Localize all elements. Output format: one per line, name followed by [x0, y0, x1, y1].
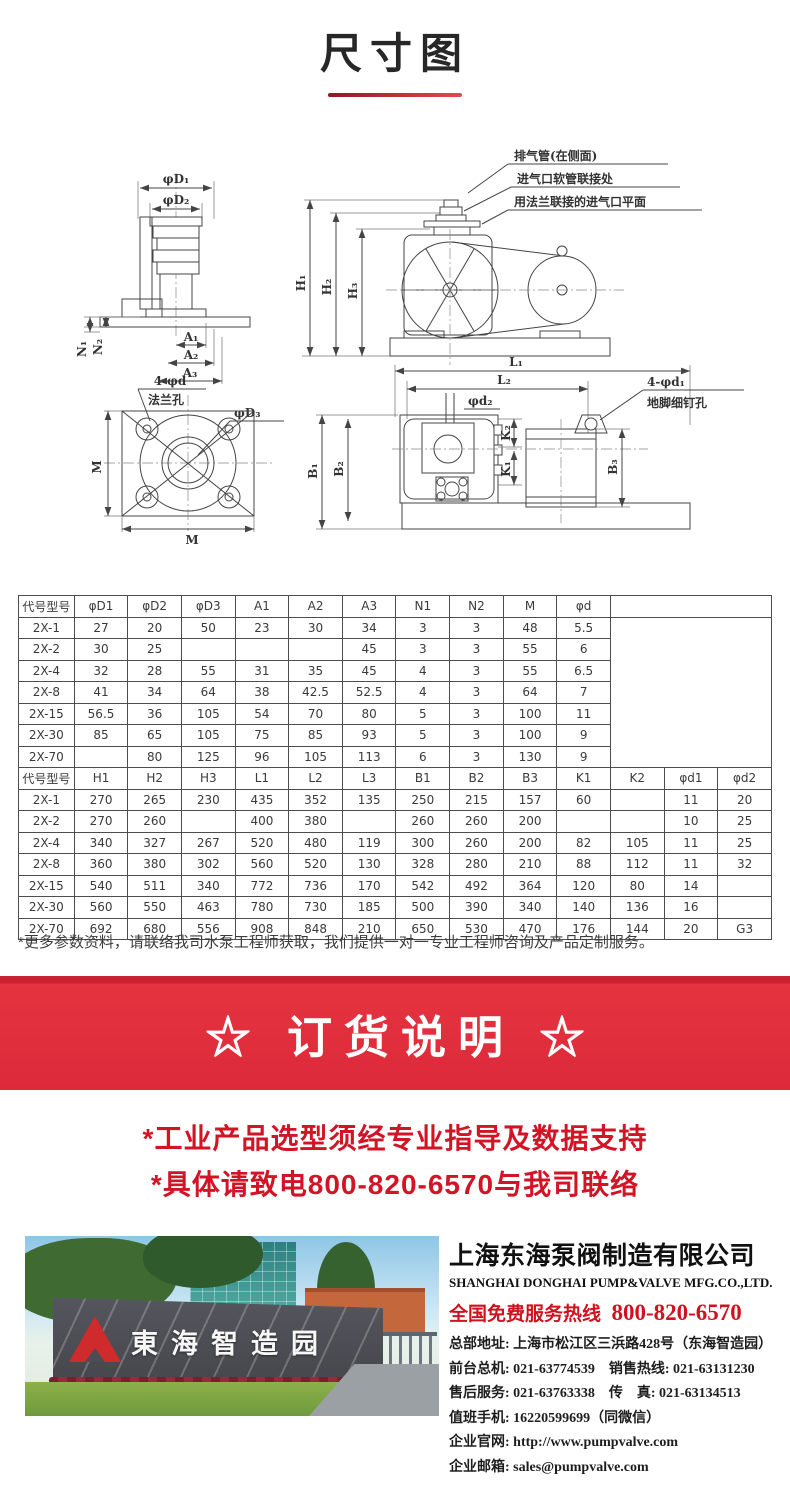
company-name-en: SHANGHAI DONGHAI PUMP&VALVE MFG.CO.,LTD.	[449, 1275, 784, 1291]
table-cell: 2X-4	[19, 660, 75, 682]
table-cell: 2X-1	[19, 789, 75, 811]
table-cell: 70	[289, 703, 343, 725]
title-underline	[328, 93, 462, 97]
table-cell: 65	[128, 725, 182, 747]
table-cell: 125	[181, 746, 235, 768]
dim-label: M	[185, 533, 198, 547]
table-cell: 2X-8	[19, 854, 75, 876]
table-cell: 35	[289, 660, 343, 682]
table-cell: 93	[342, 725, 396, 747]
table-cell: 11	[557, 703, 611, 725]
dim-label: 地脚细钉孔	[647, 395, 707, 410]
table-cell: 340	[181, 875, 235, 897]
dimension-diagrams: φD₁ φD₂ N₁ N₂	[0, 133, 790, 588]
table-cell	[289, 639, 343, 661]
table-row: 2X-155405113407727361705424923641208014	[19, 875, 772, 897]
table-cell: 3	[396, 639, 450, 661]
table-cell: 520	[289, 854, 343, 876]
table-cell: 5	[396, 703, 450, 725]
table-cell: 340	[503, 897, 557, 919]
table-cell: 52.5	[342, 682, 396, 704]
table-cell: 20	[718, 789, 772, 811]
table-row: 2X-3056055046378073018550039034014013616	[19, 897, 772, 919]
table-footnote: *更多参数资料，请联络我司水泵工程师获取，我们提供一对一专业工程师咨询及产品定制…	[18, 931, 768, 952]
table-cell: 2X-15	[19, 703, 75, 725]
table-cell: 265	[128, 789, 182, 811]
table-cell: 540	[74, 875, 128, 897]
table-cell: 2X-2	[19, 639, 75, 661]
table-cell: 32	[74, 660, 128, 682]
table-cell: 3	[450, 682, 504, 704]
table-header-row: 代号型号φD1φD2φD3A1A2A3N1N2Mφd	[19, 596, 772, 618]
table-cell: 352	[289, 789, 343, 811]
dim-label: B₃	[606, 459, 620, 474]
title-block: 尺寸图	[0, 20, 790, 97]
table-cell: 64	[181, 682, 235, 704]
dim-label: K₂	[499, 425, 513, 441]
table-cell: 2X-4	[19, 832, 75, 854]
table-cell: 6	[557, 639, 611, 661]
table-cell: 730	[289, 897, 343, 919]
column-header: φD1	[74, 596, 128, 618]
table-cell: 31	[235, 660, 289, 682]
table-cell: 4	[396, 660, 450, 682]
flange-view-drawing: 4-φd 法兰孔 φD₃ M M	[90, 374, 284, 547]
order-banner-title: ☆ 订货说明 ☆	[193, 1001, 596, 1066]
table-cell: 130	[503, 746, 557, 768]
table-cell: 82	[557, 832, 611, 854]
table-cell	[342, 811, 396, 833]
hotline-number: 800-820-6570	[611, 1300, 741, 1325]
table-cell	[610, 789, 664, 811]
table-cell: 328	[396, 854, 450, 876]
table-cell: 56.5	[74, 703, 128, 725]
contact-line-mobile: 值班手机: 16220599699（同微信）	[449, 1407, 784, 1432]
table-cell	[718, 875, 772, 897]
table-cell: 250	[396, 789, 450, 811]
table-cell: 105	[610, 832, 664, 854]
table-cell: 38	[235, 682, 289, 704]
empty-cell	[610, 617, 771, 768]
fitting-section-drawing: φD₁ φD₂ N₁ N₂	[75, 172, 250, 384]
table-cell: 3	[450, 639, 504, 661]
column-header: A3	[342, 596, 396, 618]
table-cell: 300	[396, 832, 450, 854]
table-cell: 270	[74, 789, 128, 811]
table-cell: 85	[74, 725, 128, 747]
table-cell: 23	[235, 617, 289, 639]
table-cell: 511	[128, 875, 182, 897]
park-sign-text: 東海智造园	[131, 1322, 331, 1361]
column-header: φD3	[181, 596, 235, 618]
table-cell: 36	[128, 703, 182, 725]
table-cell: 4	[396, 682, 450, 704]
table-cell: 542	[396, 875, 450, 897]
table-cell: 30	[74, 639, 128, 661]
table-cell: 400	[235, 811, 289, 833]
column-header: K2	[610, 768, 664, 790]
column-header: φD2	[128, 596, 182, 618]
table-cell: 2X-70	[19, 746, 75, 768]
table-cell	[235, 639, 289, 661]
dim-label: N₂	[91, 339, 105, 355]
table-cell: 88	[557, 854, 611, 876]
dim-label: 4-φd	[154, 374, 187, 388]
product-dimension-page: 尺寸图 φD₁ φD₂	[0, 0, 790, 1492]
table-cell: 260	[450, 832, 504, 854]
table-cell: 55	[503, 660, 557, 682]
order-notes: *工业产品选型须经专业指导及数据支持 *具体请致电800-820-6570与我司…	[0, 1116, 790, 1208]
column-header: φd1	[664, 768, 718, 790]
table-cell: 105	[181, 725, 235, 747]
table-cell: 2X-8	[19, 682, 75, 704]
column-header: A1	[235, 596, 289, 618]
table-cell: 120	[557, 875, 611, 897]
table-cell: 736	[289, 875, 343, 897]
table-cell: 135	[342, 789, 396, 811]
table-cell: 20	[128, 617, 182, 639]
table-header-row: 代号型号H1H2H3L1L2L3B1B2B3K1K2φd1φd2	[19, 768, 772, 790]
table-cell: 463	[181, 897, 235, 919]
factory-photo: 東海智造园	[25, 1236, 439, 1416]
column-header: 代号型号	[19, 768, 75, 790]
table-cell: 119	[342, 832, 396, 854]
table-cell: 136	[610, 897, 664, 919]
table-cell: 55	[503, 639, 557, 661]
table-cell: 215	[450, 789, 504, 811]
table-cell: 80	[610, 875, 664, 897]
table-cell: 267	[181, 832, 235, 854]
dim-label: A₁	[183, 330, 199, 344]
contact-line-phones: 前台总机: 021-63774539 销售热线: 021-63131230	[449, 1358, 784, 1383]
dim-label: φD₂	[163, 193, 190, 207]
table-cell: 520	[235, 832, 289, 854]
table-cell: 3	[450, 746, 504, 768]
dim-label: H₃	[346, 283, 360, 300]
column-header: H1	[74, 768, 128, 790]
empty-cell	[610, 596, 771, 618]
table-cell: 45	[342, 660, 396, 682]
table-cell: 772	[235, 875, 289, 897]
table-row: 2X-22702604003802602602001025	[19, 811, 772, 833]
table-cell: 435	[235, 789, 289, 811]
dim-label: B₂	[332, 461, 346, 476]
table-cell: 27	[74, 617, 128, 639]
table-cell: 45	[342, 639, 396, 661]
table-cell: 28	[128, 660, 182, 682]
callout-label: 进气口软管联接处	[517, 171, 614, 186]
table-row: 2X-1270265230435352135250215157601120	[19, 789, 772, 811]
table-cell: 260	[396, 811, 450, 833]
dim-label: M	[90, 460, 104, 473]
table-cell: 42.5	[289, 682, 343, 704]
dim-label: H₁	[294, 275, 308, 292]
hotline-label: 全国免费服务热线	[449, 1304, 601, 1325]
company-name-cn: 上海东海泵阀制造有限公司	[449, 1236, 784, 1272]
column-header: K1	[557, 768, 611, 790]
table-cell: 2X-30	[19, 897, 75, 919]
table-cell: 302	[181, 854, 235, 876]
table-cell: 80	[342, 703, 396, 725]
table-cell: 560	[74, 897, 128, 919]
column-header: L2	[289, 768, 343, 790]
table-cell: 364	[503, 875, 557, 897]
table-cell: 9	[557, 746, 611, 768]
table-cell: 492	[450, 875, 504, 897]
table-cell: 54	[235, 703, 289, 725]
service-hotline: 全国免费服务热线 800-820-6570	[449, 1299, 784, 1326]
table-cell: 3	[450, 617, 504, 639]
table-cell: 48	[503, 617, 557, 639]
table-cell	[181, 811, 235, 833]
table-cell: 340	[74, 832, 128, 854]
dim-label: B₁	[306, 463, 320, 478]
dim-label: N₁	[75, 341, 89, 357]
table-cell: 14	[664, 875, 718, 897]
company-info: 上海东海泵阀制造有限公司 SHANGHAI DONGHAI PUMP&VALVE…	[449, 1236, 784, 1480]
table-cell	[557, 811, 611, 833]
table-cell: 280	[450, 854, 504, 876]
table-cell: 360	[74, 854, 128, 876]
column-header: L1	[235, 768, 289, 790]
table-cell: 6	[396, 746, 450, 768]
callout-label: 用法兰联接的进气口平面	[513, 194, 646, 209]
table-cell: 3	[450, 725, 504, 747]
table-cell: 5.5	[557, 617, 611, 639]
table-cell: 113	[342, 746, 396, 768]
table-cell: 25	[128, 639, 182, 661]
table-cell: 96	[235, 746, 289, 768]
table-cell	[181, 639, 235, 661]
column-header: B3	[503, 768, 557, 790]
table-cell: 25	[718, 832, 772, 854]
dim-label: K₁	[499, 461, 513, 477]
table-cell: 3	[396, 617, 450, 639]
column-header: A2	[289, 596, 343, 618]
table-cell: 11	[664, 832, 718, 854]
dim-label: H₂	[320, 279, 334, 296]
table-cell: 2X-1	[19, 617, 75, 639]
contact-line-address: 总部地址: 上海市松江区三浜路428号（东海智造园）	[449, 1333, 784, 1358]
dim-label: φD₁	[163, 172, 190, 186]
pump-side-view-drawing: 排气管(在侧面) 进气口软管联接处 用法兰联接的进气口平面 H₁ H₂ H₃	[294, 148, 702, 365]
dim-label: A₂	[183, 348, 199, 362]
table-cell: 210	[503, 854, 557, 876]
table-cell: 200	[503, 832, 557, 854]
column-header: L3	[342, 768, 396, 790]
table-cell: 32	[718, 854, 772, 876]
table-cell: 64	[503, 682, 557, 704]
table-row: 2X-8360380302560520130328280210881121132	[19, 854, 772, 876]
dim-label: 法兰孔	[148, 392, 184, 407]
table-cell: 3	[450, 660, 504, 682]
table-cell: 85	[289, 725, 343, 747]
table-cell: 130	[342, 854, 396, 876]
callout-label: 排气管(在侧面)	[514, 148, 597, 163]
table-cell: 75	[235, 725, 289, 747]
table-cell: 2X-2	[19, 811, 75, 833]
order-note-line: *具体请致电800-820-6570与我司联络	[0, 1162, 790, 1208]
contact-line-website: 企业官网: http://www.pumpvalve.com	[449, 1431, 784, 1456]
table-cell: 55	[181, 660, 235, 682]
dim-label: φd₂	[468, 394, 493, 408]
table-cell: 25	[718, 811, 772, 833]
table-cell: 185	[342, 897, 396, 919]
table-cell: 260	[128, 811, 182, 833]
table-cell: 6.5	[557, 660, 611, 682]
table-cell: 480	[289, 832, 343, 854]
table-cell	[74, 746, 128, 768]
table-cell: 105	[289, 746, 343, 768]
table-cell: 140	[557, 897, 611, 919]
table-cell: 380	[128, 854, 182, 876]
table-cell: 30	[289, 617, 343, 639]
column-header: 代号型号	[19, 596, 75, 618]
table-cell: 41	[74, 682, 128, 704]
table-row: 2X-4340327267520480119300260200821051125	[19, 832, 772, 854]
table-cell: 390	[450, 897, 504, 919]
table-cell	[610, 811, 664, 833]
table-cell: 170	[342, 875, 396, 897]
table-cell: 5	[396, 725, 450, 747]
table-cell: 2X-30	[19, 725, 75, 747]
table-cell: 10	[664, 811, 718, 833]
order-banner: ☆ 订货说明 ☆	[0, 976, 790, 1090]
column-header: B2	[450, 768, 504, 790]
table-cell: 2X-15	[19, 875, 75, 897]
table-cell: 380	[289, 811, 343, 833]
column-header: N1	[396, 596, 450, 618]
table-cell: 11	[664, 789, 718, 811]
table-cell: 60	[557, 789, 611, 811]
dim-label: L₂	[497, 373, 511, 387]
table-cell: 200	[503, 811, 557, 833]
table-cell: 50	[181, 617, 235, 639]
dim-label: 4-φd₁	[647, 375, 685, 389]
column-header: φd	[557, 596, 611, 618]
table-cell: 16	[664, 897, 718, 919]
table-cell: 230	[181, 789, 235, 811]
table-cell: 7	[557, 682, 611, 704]
table-cell: 100	[503, 703, 557, 725]
table-cell	[718, 897, 772, 919]
table-cell: 80	[128, 746, 182, 768]
table-cell: 9	[557, 725, 611, 747]
table-cell: 260	[450, 811, 504, 833]
contact-block: 总部地址: 上海市松江区三浜路428号（东海智造园） 前台总机: 021-637…	[449, 1333, 784, 1480]
column-header: B1	[396, 768, 450, 790]
contact-line-service-fax: 售后服务: 021-63763338 传 真: 021-63134513	[449, 1382, 784, 1407]
column-header: H3	[181, 768, 235, 790]
dimension-table: 代号型号φD1φD2φD3A1A2A3N1N2Mφd2X-12720502330…	[18, 595, 772, 940]
pump-top-view-drawing: L₁ L₂ φd₂ K₂ K₁	[306, 355, 744, 529]
table-cell: 34	[128, 682, 182, 704]
table-cell: 34	[342, 617, 396, 639]
table-cell: 560	[235, 854, 289, 876]
table-cell: 550	[128, 897, 182, 919]
table-cell: 105	[181, 703, 235, 725]
order-note-line: *工业产品选型须经专业指导及数据支持	[0, 1116, 790, 1162]
column-header: H2	[128, 768, 182, 790]
table-cell: 327	[128, 832, 182, 854]
table-cell: 100	[503, 725, 557, 747]
page-title: 尺寸图	[0, 20, 790, 81]
table-row: 2X-127205023303433485.5	[19, 617, 772, 639]
dim-label: φD₃	[234, 406, 261, 420]
dim-label: L₁	[509, 355, 523, 369]
table-cell: 3	[450, 703, 504, 725]
table-cell: 157	[503, 789, 557, 811]
column-header: φd2	[718, 768, 772, 790]
column-header: M	[503, 596, 557, 618]
table-cell: 780	[235, 897, 289, 919]
table-cell: 270	[74, 811, 128, 833]
table-cell: 500	[396, 897, 450, 919]
column-header: N2	[450, 596, 504, 618]
table-cell: 112	[610, 854, 664, 876]
contact-line-email: 企业邮箱: sales@pumpvalve.com	[449, 1456, 784, 1481]
table-cell: 11	[664, 854, 718, 876]
